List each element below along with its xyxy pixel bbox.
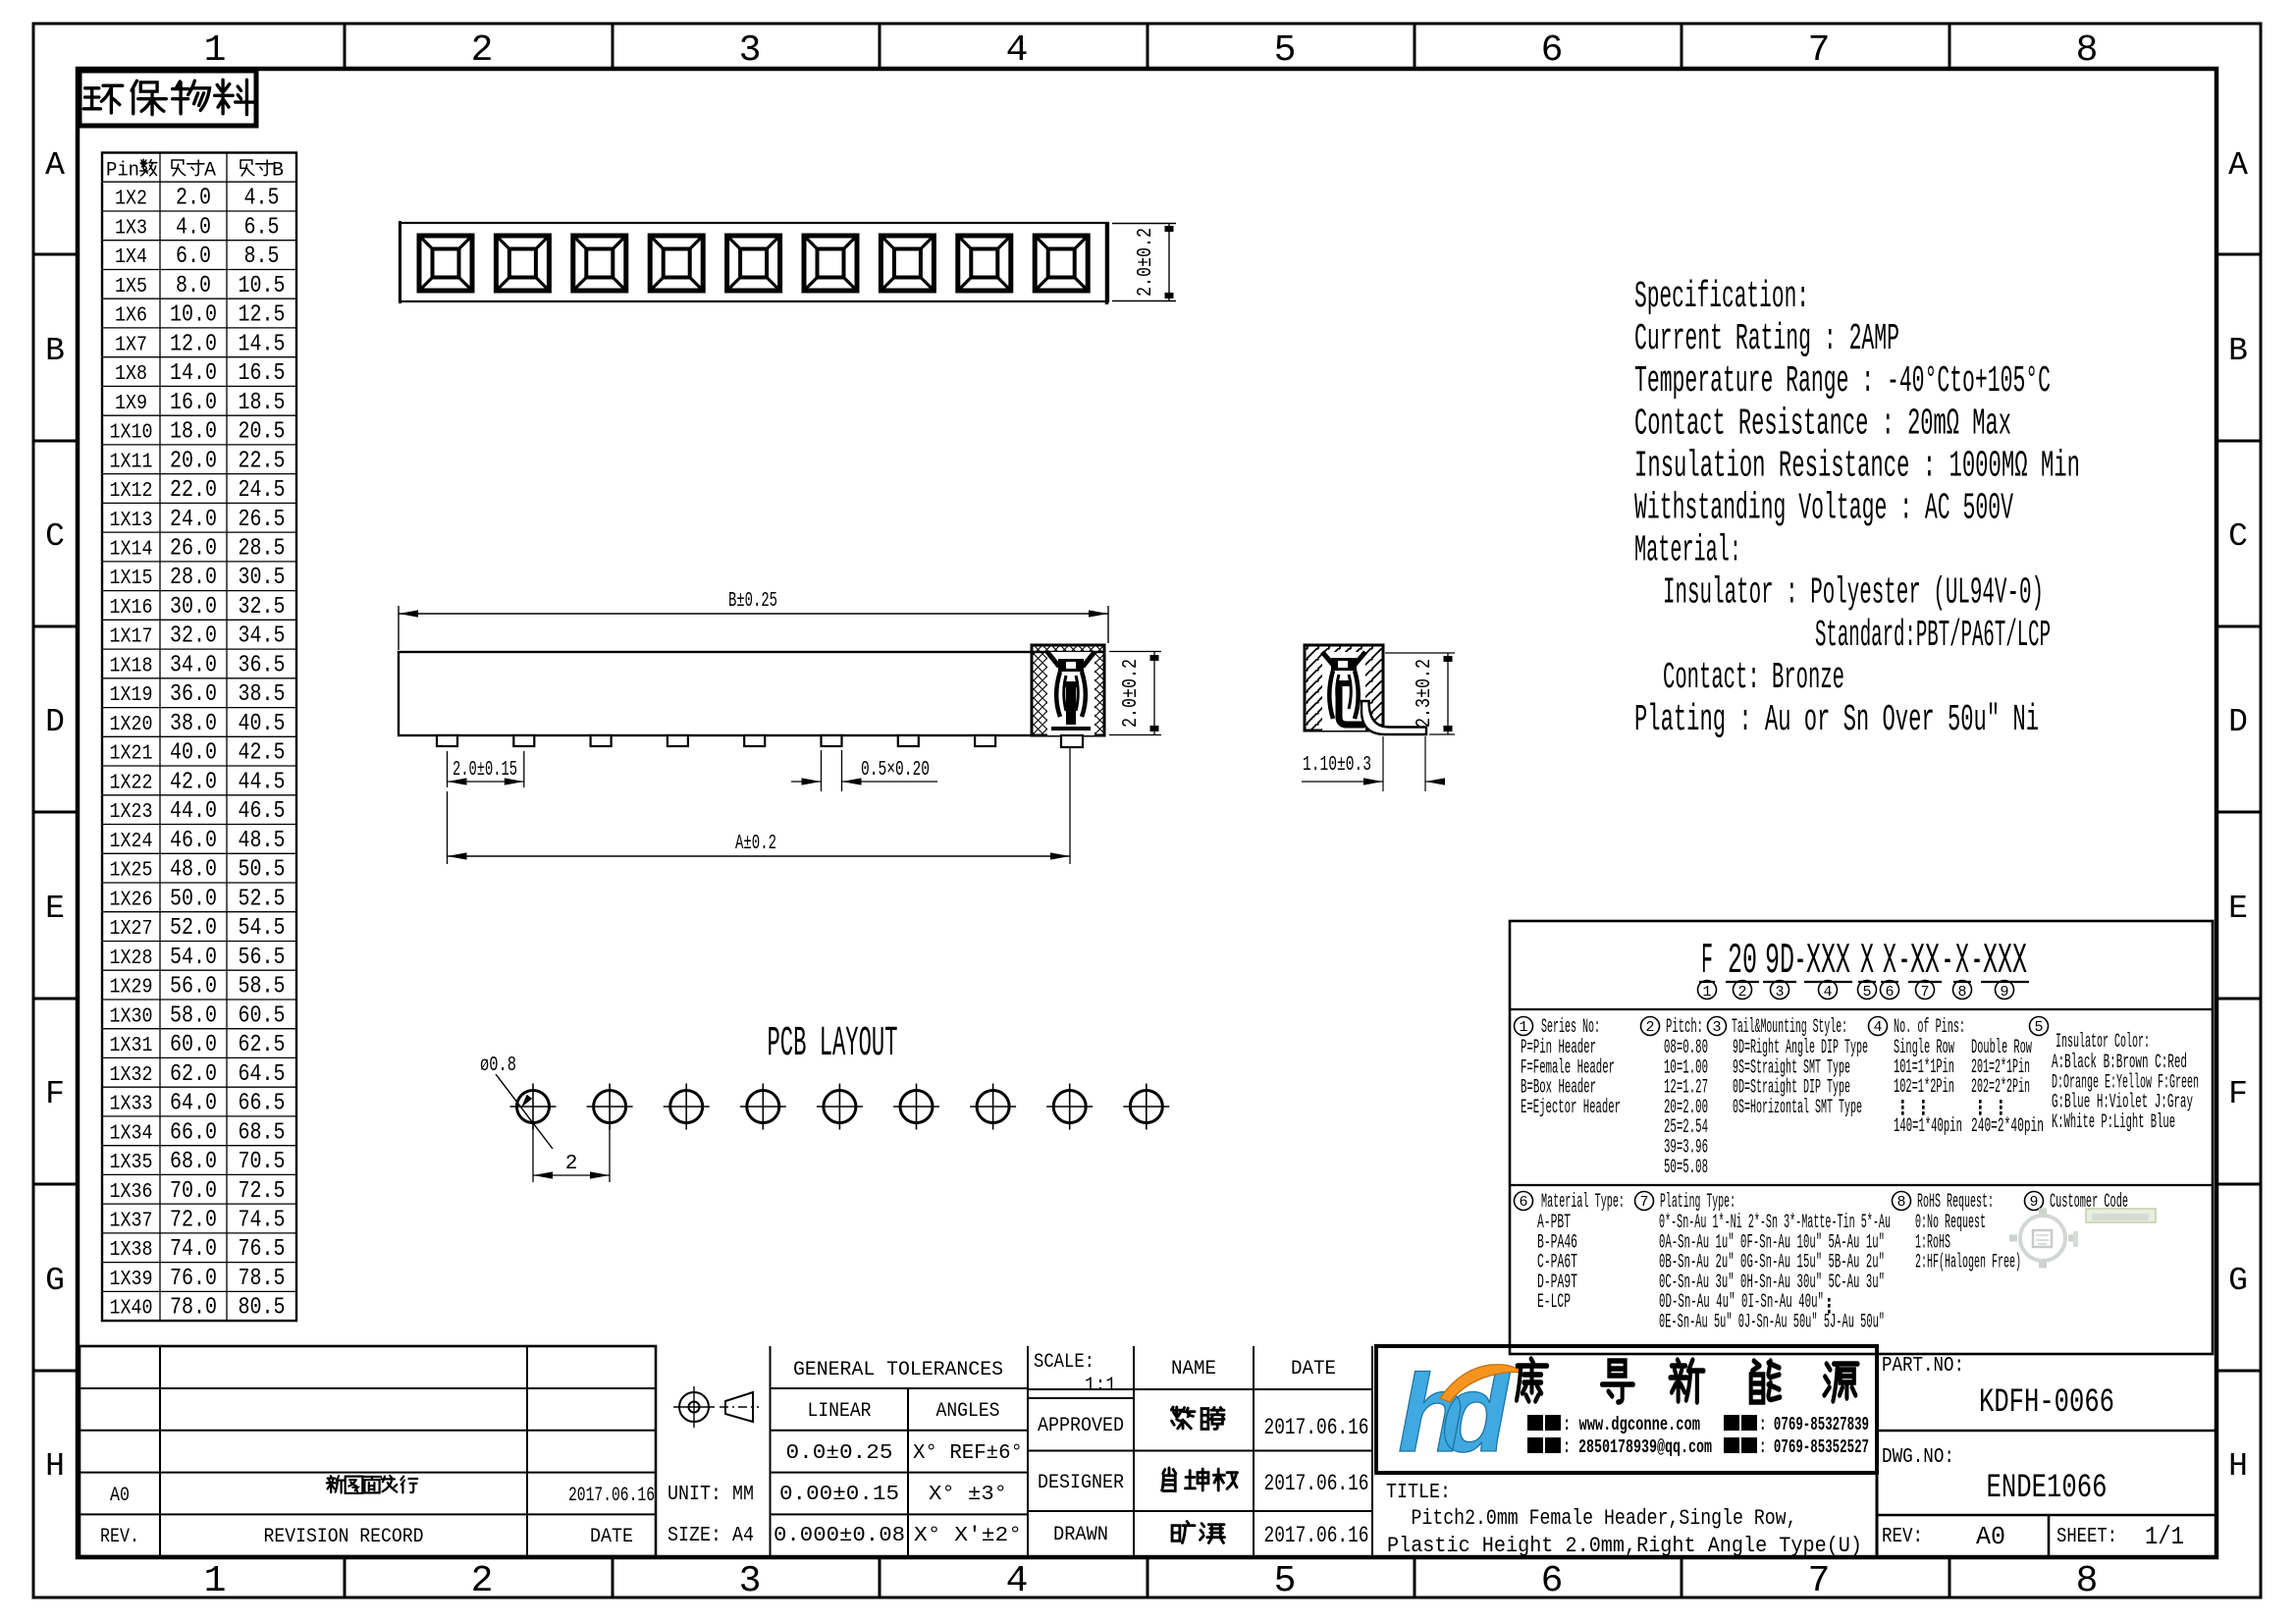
svg-text:1X15: 1X15: [110, 568, 153, 590]
svg-text:26.0: 26.0: [170, 536, 217, 563]
svg-text:1X14: 1X14: [110, 539, 153, 562]
svg-text:-: -: [1971, 937, 1983, 986]
svg-text:-: -: [1794, 937, 1806, 986]
svg-text:60.5: 60.5: [239, 1002, 286, 1029]
svg-text:64.5: 64.5: [239, 1061, 286, 1088]
svg-text:4.5: 4.5: [244, 186, 280, 212]
svg-text:1: 1: [1702, 984, 1711, 1001]
svg-text:20: 20: [1728, 937, 1757, 986]
svg-text:1X34: 1X34: [110, 1122, 153, 1145]
svg-text:1X40: 1X40: [110, 1298, 153, 1321]
svg-text:1X12: 1X12: [110, 480, 153, 503]
svg-text:18.5: 18.5: [239, 390, 286, 416]
svg-text:2: 2: [471, 29, 494, 72]
svg-text:26.5: 26.5: [239, 507, 286, 533]
svg-text:B: B: [45, 333, 65, 369]
svg-text:1X2: 1X2: [115, 189, 147, 211]
svg-text:24.0: 24.0: [170, 507, 217, 533]
svg-text:10.0: 10.0: [170, 302, 217, 329]
svg-text:Tail&Mounting Style:: Tail&Mounting Style:: [1732, 1016, 1847, 1039]
svg-text:2.0±0.2: 2.0±0.2: [1120, 659, 1143, 728]
svg-text:KDFH-0066: KDFH-0066: [1979, 1384, 2114, 1422]
svg-text:XX: XX: [1910, 937, 1940, 986]
svg-text:C: C: [2228, 518, 2248, 555]
svg-text:Plastic Height 2.0mm,Right Ang: Plastic Height 2.0mm,Right Angle Type(U): [1387, 1534, 1862, 1558]
svg-text:78.0: 78.0: [170, 1295, 217, 1322]
svg-text:38.0: 38.0: [170, 711, 217, 737]
svg-text:6: 6: [1519, 1194, 1527, 1211]
svg-text:1X8: 1X8: [115, 363, 147, 386]
svg-text:A0: A0: [1976, 1522, 2005, 1551]
svg-text:2: 2: [1737, 984, 1746, 1001]
svg-text:62.5: 62.5: [239, 1032, 286, 1058]
svg-text:24.5: 24.5: [239, 477, 286, 504]
svg-text:9: 9: [2000, 984, 2008, 1001]
svg-text:1X4: 1X4: [115, 246, 147, 269]
svg-text:70.5: 70.5: [239, 1149, 286, 1175]
svg-text:40.5: 40.5: [239, 711, 286, 737]
svg-text:2: 2: [565, 1153, 578, 1175]
svg-text:28.0: 28.0: [170, 565, 217, 591]
svg-text:8: 8: [1896, 1194, 1905, 1211]
svg-text:ø0.8: ø0.8: [480, 1055, 516, 1077]
svg-text:46.5: 46.5: [239, 798, 286, 825]
svg-text:APPROVED: APPROVED: [1038, 1415, 1124, 1437]
svg-text:9D: 9D: [1765, 937, 1794, 986]
svg-text:ENDE1066: ENDE1066: [1987, 1470, 2108, 1507]
svg-text:Temperature Range : -40°Cto+10: Temperature Range : -40°Cto+105°C: [1634, 360, 2051, 403]
svg-text:TITLE:: TITLE:: [1386, 1482, 1451, 1504]
svg-text:6.5: 6.5: [244, 214, 280, 241]
svg-text:68.0: 68.0: [170, 1149, 217, 1175]
svg-text:70.0: 70.0: [170, 1178, 217, 1205]
svg-text:1X23: 1X23: [110, 801, 153, 824]
svg-text:-: -: [1898, 937, 1910, 986]
svg-text:6: 6: [1541, 29, 1564, 72]
svg-text:F: F: [2228, 1076, 2248, 1112]
svg-text:64.0: 64.0: [170, 1091, 217, 1117]
svg-text:20.5: 20.5: [239, 419, 286, 446]
svg-text:74.5: 74.5: [239, 1208, 286, 1234]
svg-text:1X30: 1X30: [110, 1005, 153, 1028]
svg-text:8: 8: [2076, 29, 2099, 72]
svg-text:50=5.08: 50=5.08: [1664, 1157, 1708, 1179]
svg-text:12.0: 12.0: [170, 331, 217, 357]
svg-text:8: 8: [1957, 984, 1966, 1001]
svg-text:A: A: [204, 159, 216, 182]
svg-text:2: 2: [1645, 1019, 1654, 1036]
svg-text:Insulator : Polyester (UL94V-0: Insulator : Polyester (UL94V-0): [1663, 572, 2044, 615]
svg-text:36.5: 36.5: [239, 652, 286, 678]
svg-text:1X3: 1X3: [115, 217, 147, 240]
svg-text:7: 7: [1920, 984, 1929, 1001]
svg-text:1X36: 1X36: [110, 1181, 153, 1204]
svg-text:2017.06.16: 2017.06.16: [1264, 1415, 1369, 1440]
svg-text:0.0±0.25: 0.0±0.25: [786, 1442, 893, 1465]
svg-text:14.5: 14.5: [239, 331, 286, 357]
svg-text:G: G: [45, 1263, 65, 1299]
svg-text:3: 3: [1712, 1019, 1721, 1036]
svg-text:2: 2: [471, 1560, 494, 1602]
svg-text:X° REF±6°: X° REF±6°: [913, 1442, 1023, 1465]
svg-text:7: 7: [1639, 1194, 1648, 1211]
svg-text:66.0: 66.0: [170, 1119, 217, 1146]
svg-text:4: 4: [1006, 29, 1029, 72]
svg-text:2.0±0.2: 2.0±0.2: [1135, 228, 1157, 297]
svg-text:42.5: 42.5: [239, 740, 286, 767]
svg-text:1X16: 1X16: [110, 597, 153, 620]
svg-text:16.0: 16.0: [170, 390, 217, 416]
svg-text:2:HF(Halogen Free): 2:HF(Halogen Free): [1915, 1252, 2021, 1274]
svg-text:0E-Sn-Au 5u" 0J-Sn-Au 50u" 5J: 0E-Sn-Au 5u" 0J-Sn-Au 50u" 5J-Au 50u": [1659, 1312, 1885, 1334]
svg-text:1X25: 1X25: [110, 860, 153, 883]
svg-text:ANGLES: ANGLES: [936, 1400, 1000, 1423]
svg-text:80.5: 80.5: [239, 1295, 286, 1322]
svg-text:Specification:: Specification:: [1634, 276, 1809, 318]
svg-text:UNIT: MM: UNIT: MM: [667, 1484, 754, 1506]
svg-text:DRAWN: DRAWN: [1053, 1524, 1108, 1546]
svg-text:34.0: 34.0: [170, 652, 217, 678]
svg-text:Series No:: Series No:: [1541, 1016, 1600, 1039]
svg-text:44.5: 44.5: [239, 769, 286, 795]
svg-text:22.0: 22.0: [170, 477, 217, 504]
svg-text:5: 5: [1274, 1560, 1297, 1602]
svg-text:1X9: 1X9: [115, 393, 147, 415]
svg-text:PART.NO:: PART.NO:: [1882, 1355, 1964, 1378]
svg-text:5: 5: [1274, 29, 1297, 72]
svg-text:46.0: 46.0: [170, 828, 217, 854]
svg-text:XXX: XXX: [1983, 937, 2027, 986]
svg-text:1: 1: [1519, 1019, 1527, 1036]
svg-text:1X24: 1X24: [110, 831, 153, 853]
svg-text:68.5: 68.5: [239, 1119, 286, 1146]
svg-text:1X19: 1X19: [110, 684, 153, 707]
svg-text:4: 4: [1006, 1560, 1029, 1602]
svg-text:Contact: Bronze: Contact: Bronze: [1663, 657, 1844, 699]
svg-text:20.0: 20.0: [170, 448, 217, 474]
svg-text:1: 1: [204, 1560, 227, 1602]
svg-text:1X22: 1X22: [110, 772, 153, 794]
svg-text:2.0: 2.0: [176, 186, 211, 212]
svg-text:X° X'±2°: X° X'±2°: [914, 1525, 1022, 1547]
svg-text:1X20: 1X20: [110, 714, 153, 736]
svg-text:72.0: 72.0: [170, 1208, 217, 1234]
svg-text:3: 3: [739, 1560, 762, 1602]
svg-text:A±0.2: A±0.2: [735, 833, 776, 855]
svg-text:4: 4: [1823, 984, 1832, 1001]
svg-text:NAME: NAME: [1171, 1358, 1216, 1380]
svg-text:Withstanding Voltage : AC 500V: Withstanding Voltage : AC 500V: [1634, 488, 2013, 530]
svg-text:42.0: 42.0: [170, 769, 217, 795]
svg-text:DWG.NO:: DWG.NO:: [1882, 1446, 1954, 1469]
svg-text:G: G: [2228, 1263, 2248, 1299]
svg-text:1X11: 1X11: [110, 451, 153, 473]
svg-text:58.0: 58.0: [170, 1002, 217, 1029]
svg-text:E: E: [45, 891, 65, 927]
svg-text:Contact Resistance : 20mΩ Max: Contact Resistance : 20mΩ Max: [1634, 403, 2011, 445]
svg-text:240=2*40pin: 240=2*40pin: [1971, 1115, 2044, 1138]
svg-text:Pitch2.0mm Female Header,Singl: Pitch2.0mm Female Header,Single Row,: [1412, 1506, 1797, 1531]
svg-text:E=Ejector Header: E=Ejector Header: [1521, 1097, 1621, 1119]
svg-text:REV.: REV.: [100, 1526, 139, 1548]
svg-text:1X6: 1X6: [115, 305, 147, 328]
svg-text:B: B: [272, 159, 284, 182]
svg-text:50.0: 50.0: [170, 886, 217, 912]
svg-text:0.00±0.15: 0.00±0.15: [779, 1484, 899, 1506]
svg-text:18.0: 18.0: [170, 419, 217, 446]
svg-text:5: 5: [1862, 984, 1871, 1001]
svg-text:LINEAR: LINEAR: [808, 1400, 872, 1423]
svg-text:140=1*40pin: 140=1*40pin: [1894, 1115, 1962, 1138]
svg-text:1X31: 1X31: [110, 1035, 153, 1057]
svg-text:8.5: 8.5: [244, 244, 280, 270]
svg-text:A: A: [45, 147, 65, 184]
svg-text:X: X: [1860, 937, 1874, 986]
svg-text:22.5: 22.5: [239, 448, 286, 474]
svg-text:76.0: 76.0: [170, 1266, 217, 1292]
svg-text:GENERAL TOLERANCES: GENERAL TOLERANCES: [793, 1359, 1003, 1381]
svg-text:72.5: 72.5: [239, 1178, 286, 1205]
svg-text:D: D: [45, 704, 65, 740]
svg-text:38.5: 38.5: [239, 681, 286, 708]
svg-text:1X18: 1X18: [110, 655, 153, 677]
svg-text:2017.06.16: 2017.06.16: [1264, 1471, 1369, 1496]
svg-text:1X39: 1X39: [110, 1269, 153, 1291]
svg-text:PCB LAYOUT: PCB LAYOUT: [768, 1019, 898, 1067]
svg-text:F: F: [1701, 937, 1713, 986]
svg-text:2017.06.16: 2017.06.16: [1264, 1523, 1369, 1548]
svg-text:B±0.25: B±0.25: [728, 590, 777, 613]
svg-text:1X27: 1X27: [110, 918, 153, 941]
svg-text:30.0: 30.0: [170, 594, 217, 621]
svg-text:1X26: 1X26: [110, 889, 153, 911]
svg-text:56.0: 56.0: [170, 974, 217, 1001]
svg-text:202=2*2Pin: 202=2*2Pin: [1971, 1076, 2030, 1099]
svg-text:52.0: 52.0: [170, 915, 217, 942]
svg-text:D: D: [2228, 704, 2248, 740]
svg-text:Pitch:: Pitch:: [1666, 1016, 1703, 1039]
svg-text:36.0: 36.0: [170, 681, 217, 708]
svg-text:5: 5: [2034, 1019, 2043, 1036]
svg-text:Insulation Resistance : 1000MΩ: Insulation Resistance : 1000MΩ Min: [1634, 445, 2080, 487]
svg-text:Material:: Material:: [1634, 530, 1741, 572]
svg-text:1/1: 1/1: [2145, 1522, 2184, 1551]
svg-text:78.5: 78.5: [239, 1266, 286, 1292]
svg-text:76.5: 76.5: [239, 1236, 286, 1263]
svg-text:66.5: 66.5: [239, 1091, 286, 1117]
svg-text:Material Type:: Material Type:: [1541, 1191, 1625, 1214]
svg-text:A0: A0: [110, 1485, 130, 1507]
svg-text:1X21: 1X21: [110, 743, 153, 766]
svg-text:9: 9: [2029, 1194, 2038, 1211]
svg-text:1X35: 1X35: [110, 1152, 153, 1174]
svg-text:3: 3: [1775, 984, 1784, 1001]
svg-text:48.5: 48.5: [239, 828, 286, 854]
svg-text:: 2850178939@qq.com: : 2850178939@qq.com: [1563, 1436, 1712, 1458]
svg-text:DATE: DATE: [590, 1526, 633, 1548]
svg-text:8.0: 8.0: [176, 273, 211, 299]
svg-text:: www.dgconne.com: : www.dgconne.com: [1563, 1414, 1700, 1435]
svg-text:8: 8: [2076, 1560, 2099, 1602]
svg-text:C: C: [45, 518, 65, 555]
svg-text:54.5: 54.5: [239, 915, 286, 942]
svg-text:A: A: [2228, 147, 2248, 184]
svg-text:Pin: Pin: [106, 159, 139, 182]
svg-text:1X7: 1X7: [115, 334, 147, 356]
svg-text:1X13: 1X13: [110, 510, 153, 532]
svg-text:RoHS Request:: RoHS Request:: [1917, 1191, 1994, 1214]
svg-text:E: E: [2228, 891, 2248, 927]
svg-text:52.5: 52.5: [239, 886, 286, 912]
svg-text:4: 4: [1873, 1019, 1882, 1036]
svg-text:F: F: [45, 1076, 65, 1112]
svg-text:1X28: 1X28: [110, 947, 153, 970]
svg-text:E-LCP: E-LCP: [1537, 1291, 1571, 1314]
svg-text:No. of Pins:: No. of Pins:: [1894, 1016, 1965, 1039]
svg-text:REVISION RECORD: REVISION RECORD: [264, 1526, 424, 1548]
svg-text:1X33: 1X33: [110, 1094, 153, 1116]
svg-text:X° ±3°: X° ±3°: [929, 1484, 1007, 1506]
svg-text:32.5: 32.5: [239, 594, 286, 621]
svg-text:1X37: 1X37: [110, 1211, 153, 1233]
svg-text:74.0: 74.0: [170, 1236, 217, 1263]
svg-text:44.0: 44.0: [170, 798, 217, 825]
svg-text:48.0: 48.0: [170, 857, 217, 884]
svg-text:: 0769-85327839: : 0769-85327839: [1759, 1414, 1869, 1435]
svg-text:1:1: 1:1: [1085, 1375, 1116, 1397]
svg-text:50.5: 50.5: [239, 857, 286, 884]
svg-text:0.000±0.08: 0.000±0.08: [774, 1525, 905, 1547]
svg-text:DESIGNER: DESIGNER: [1038, 1472, 1124, 1494]
svg-text:4.0: 4.0: [176, 214, 211, 241]
svg-text:X: X: [1955, 937, 1969, 986]
svg-text:16.5: 16.5: [239, 360, 286, 387]
svg-text:1X5: 1X5: [115, 276, 147, 298]
svg-text:6.0: 6.0: [176, 244, 211, 270]
svg-text:10.5: 10.5: [239, 273, 286, 299]
svg-text:2.3±0.2: 2.3±0.2: [1414, 659, 1436, 728]
svg-text:60.0: 60.0: [170, 1032, 217, 1058]
svg-text:0S=Horizontal SMT Type: 0S=Horizontal SMT Type: [1733, 1097, 1862, 1119]
svg-text:DATE: DATE: [1291, 1358, 1336, 1380]
svg-text:K:White P:Light Blue: K:White P:Light Blue: [2052, 1111, 2175, 1134]
svg-text:SHEET:: SHEET:: [2056, 1526, 2117, 1548]
svg-text:40.0: 40.0: [170, 740, 217, 767]
svg-text:-: -: [1942, 937, 1953, 986]
svg-text:30.5: 30.5: [239, 565, 286, 591]
svg-text:1.10±0.3: 1.10±0.3: [1303, 754, 1371, 777]
svg-text:12.5: 12.5: [239, 302, 286, 329]
svg-text:7: 7: [1808, 29, 1831, 72]
svg-text:X: X: [1883, 937, 1896, 986]
svg-text:6: 6: [1541, 1560, 1564, 1602]
svg-text:0.5×0.20: 0.5×0.20: [861, 759, 930, 782]
svg-text:1X29: 1X29: [110, 977, 153, 1000]
svg-text:1X38: 1X38: [110, 1239, 153, 1262]
svg-text:32.0: 32.0: [170, 623, 217, 650]
svg-text:XXX: XXX: [1806, 937, 1850, 986]
svg-text:REV:: REV:: [1882, 1526, 1923, 1548]
svg-text:1: 1: [204, 29, 227, 72]
svg-text:Plating : Au or Sn Over 50u" N: Plating : Au or Sn Over 50u" Ni: [1634, 699, 2039, 741]
svg-text:2017.06.16: 2017.06.16: [568, 1485, 655, 1507]
svg-text:1X32: 1X32: [110, 1064, 153, 1087]
svg-text:Standard:PBT/PA6T/LCP: Standard:PBT/PA6T/LCP: [1815, 615, 2051, 657]
svg-text:7: 7: [1808, 1560, 1831, 1602]
svg-text:H: H: [45, 1448, 65, 1485]
svg-text:1X17: 1X17: [110, 626, 153, 649]
svg-text:Insulator Color:: Insulator Color:: [2056, 1031, 2150, 1054]
svg-text:H: H: [2228, 1448, 2248, 1485]
svg-text:: 0769-85352527: : 0769-85352527: [1759, 1436, 1869, 1458]
svg-text:62.0: 62.0: [170, 1061, 217, 1088]
svg-text:SIZE: A4: SIZE: A4: [667, 1525, 754, 1547]
svg-text:6: 6: [1885, 984, 1894, 1001]
svg-text:1X10: 1X10: [110, 422, 153, 445]
svg-text:14.0: 14.0: [170, 360, 217, 387]
svg-text:28.5: 28.5: [239, 536, 286, 563]
svg-text:56.5: 56.5: [239, 945, 286, 971]
svg-text:58.5: 58.5: [239, 974, 286, 1001]
svg-text:34.5: 34.5: [239, 623, 286, 650]
svg-text:Plating Type:: Plating Type:: [1660, 1191, 1735, 1214]
svg-text:Current Rating : 2AMP: Current Rating : 2AMP: [1634, 318, 1899, 360]
svg-text:B: B: [2228, 333, 2248, 369]
svg-text:SCALE:: SCALE:: [1034, 1351, 1095, 1374]
svg-text:3: 3: [739, 29, 762, 72]
svg-text:102=1*2Pin: 102=1*2Pin: [1894, 1076, 1954, 1099]
svg-text:2.0±0.15: 2.0±0.15: [453, 759, 517, 782]
svg-text:54.0: 54.0: [170, 945, 217, 971]
